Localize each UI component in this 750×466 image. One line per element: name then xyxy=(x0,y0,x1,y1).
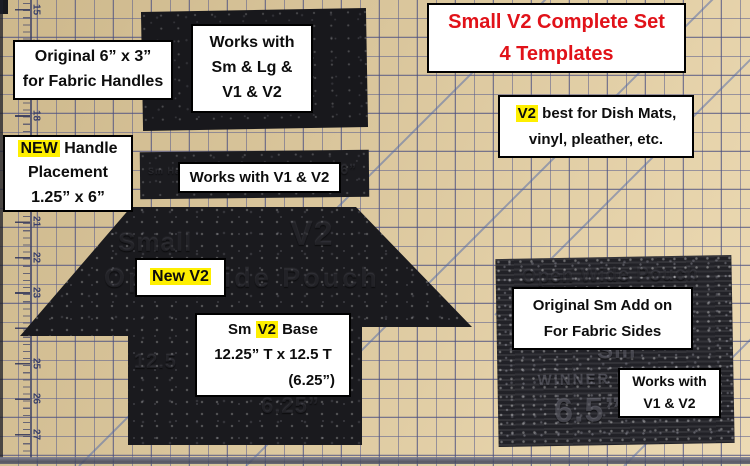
highlight-v2: V2 xyxy=(256,321,278,338)
label-line: NEW Handle xyxy=(5,137,131,161)
template-sm-addon: Open Wide Pouch Sm WINNER D 6.5” xyxy=(495,255,734,447)
highlight-new-v2: New V2 xyxy=(150,268,211,285)
label-sm-v2-base: Sm V2 Base 12.25” T x 12.5 T (6.25”) xyxy=(195,313,351,397)
label-line: Original Sm Add on xyxy=(514,293,691,319)
label-line: Works with xyxy=(620,371,719,393)
label-line: 12.25” T x 12.5 T xyxy=(197,342,349,368)
ruler-number: 26 xyxy=(31,389,42,409)
highlight-new: NEW xyxy=(18,140,59,157)
embossed-text: Open Wide Pouch xyxy=(522,264,700,289)
label-new-handle-placement: NEW Handle Placement 1.25” x 6” xyxy=(3,135,133,212)
photo-left-edge xyxy=(0,0,3,458)
embossed-text: V2 xyxy=(290,215,334,254)
ruler-number: 21 xyxy=(31,212,42,232)
title-line-1: Small V2 Complete Set xyxy=(429,6,684,38)
label-line: For Fabric Sides xyxy=(514,319,691,345)
label-line: Sm V2 Base xyxy=(197,317,349,343)
label-original-6x3: Original 6” x 3” for Fabric Handles xyxy=(13,40,173,100)
ruler-number: 15 xyxy=(31,0,42,20)
embossed-text: Small xyxy=(118,227,192,258)
label-text: Handle xyxy=(60,140,118,157)
label-line: Sm & Lg & xyxy=(193,56,311,81)
embossed-text: 6” xyxy=(340,161,357,177)
title-card: Small V2 Complete Set 4 Templates xyxy=(427,3,686,73)
label-line: (6.25”) xyxy=(197,368,349,394)
label-works-v1-v2-strip: Works with V1 & V2 xyxy=(178,162,341,193)
highlight-v2: V2 xyxy=(516,105,538,122)
ruler-number: 23 xyxy=(31,283,42,303)
label-line: Works with xyxy=(193,31,311,56)
label-line: V1 & V2 xyxy=(620,393,719,415)
label-line: 1.25” x 6” xyxy=(5,186,131,210)
embossed-text: 6.5” xyxy=(554,391,623,431)
embossed-text: WINNER D xyxy=(537,371,629,390)
title-line-2: 4 Templates xyxy=(429,38,684,70)
label-line: V2 best for Dish Mats, xyxy=(500,101,692,127)
label-line: Placement xyxy=(5,161,131,185)
label-line: for Fabric Handles xyxy=(15,70,171,95)
label-text: Sm xyxy=(228,321,256,338)
label-text: best for Dish Mats, xyxy=(538,105,676,122)
label-line: New V2 xyxy=(137,265,224,290)
mat-bottom-edge xyxy=(0,457,750,464)
label-v2-best-for: V2 best for Dish Mats, vinyl, pleather, … xyxy=(498,95,694,158)
label-new-v2: New V2 xyxy=(135,258,226,297)
ruler-number: 22 xyxy=(31,247,42,267)
label-text: Base xyxy=(278,321,318,338)
label-works-v1-v2-addon: Works with V1 & V2 xyxy=(618,368,721,418)
ruler-number: 18 xyxy=(31,106,42,126)
ruler-number: 27 xyxy=(31,424,42,444)
label-line: Works with V1 & V2 xyxy=(180,166,339,189)
label-line: vinyl, pleather, etc. xyxy=(500,127,692,153)
label-line: Original 6” x 3” xyxy=(15,45,171,70)
label-original-sm-addon: Original Sm Add on For Fabric Sides xyxy=(512,287,693,350)
label-works-sm-lg: Works with Sm & Lg & V1 & V2 xyxy=(191,24,313,113)
label-line: V1 & V2 xyxy=(193,81,311,106)
product-photo: 15161718192021222324252627 Sm Handle 6” … xyxy=(0,0,750,466)
embossed-text: 12.5 xyxy=(134,351,177,374)
ruler-number: 25 xyxy=(31,354,42,374)
